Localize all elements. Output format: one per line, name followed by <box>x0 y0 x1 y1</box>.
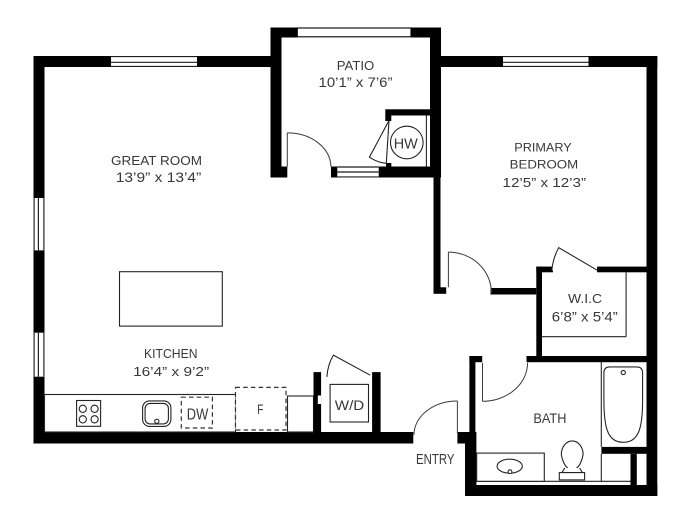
svg-text:W.I.C: W.I.C <box>568 292 602 306</box>
svg-text:16’4” x 9’2”: 16’4” x 9’2” <box>133 364 209 379</box>
svg-text:BEDROOM: BEDROOM <box>510 160 579 172</box>
svg-text:PATIO: PATIO <box>337 58 375 73</box>
svg-text:F: F <box>257 402 263 417</box>
svg-text:KITCHEN: KITCHEN <box>144 347 198 361</box>
svg-text:6’8” x 5’4”: 6’8” x 5’4” <box>552 308 618 324</box>
svg-text:ENTRY: ENTRY <box>416 451 455 468</box>
svg-text:HW: HW <box>394 135 419 152</box>
svg-text:12’5” x 12’3”: 12’5” x 12’3” <box>503 175 587 190</box>
svg-text:13’9” x 13’4”: 13’9” x 13’4” <box>116 169 202 185</box>
svg-text:GREAT ROOM: GREAT ROOM <box>111 153 202 168</box>
svg-text:10’1” x 7’6”: 10’1” x 7’6” <box>319 75 393 90</box>
svg-text:PRIMARY: PRIMARY <box>514 143 572 155</box>
svg-text:W/D: W/D <box>335 397 365 413</box>
svg-text:DW: DW <box>187 406 209 423</box>
svg-text:BATH: BATH <box>533 411 566 426</box>
